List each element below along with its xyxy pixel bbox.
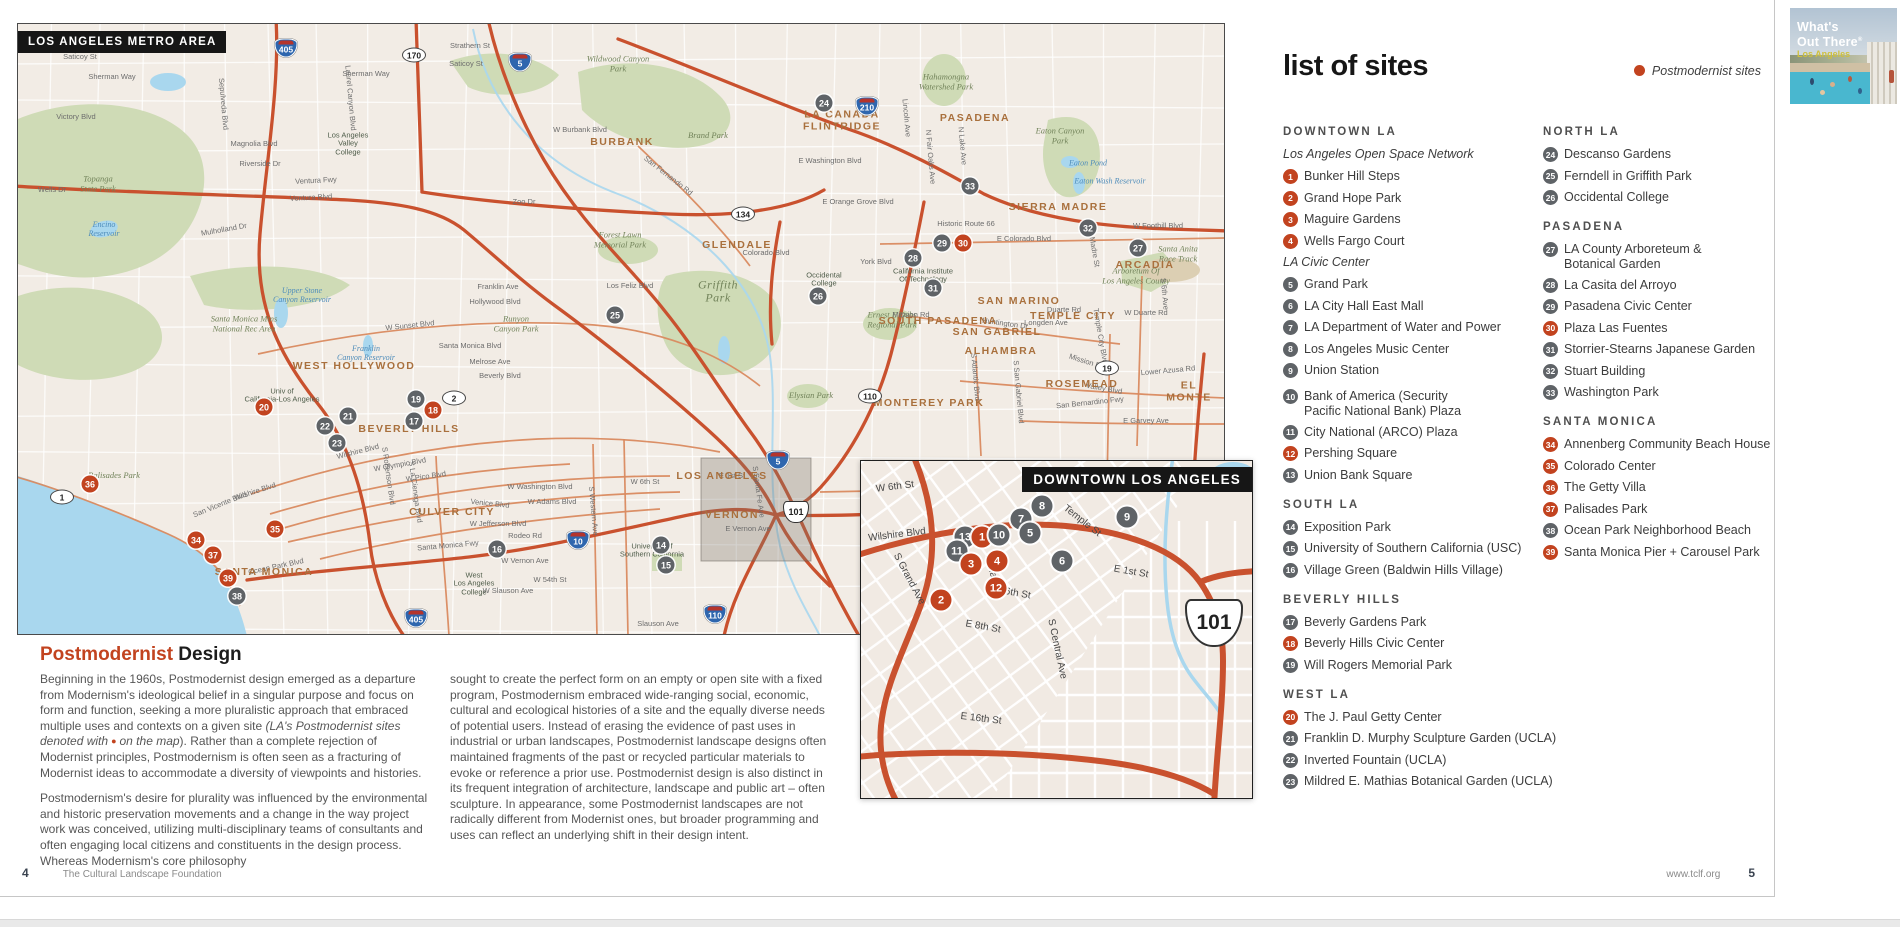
list-item-10: 10Bank of America (Security Pacific Nati… xyxy=(1283,389,1533,418)
article-paragraph-3: sought to create the perfect form on an … xyxy=(450,672,835,844)
site-name: Union Station xyxy=(1304,363,1379,378)
list-of-sites-panel: list of sites Postmodernist sites DOWNTO… xyxy=(1283,50,1761,83)
site-number-bullet: 31 xyxy=(1543,342,1558,357)
article-heading-rest: Design xyxy=(173,644,242,665)
list-item-39: 39Santa Monica Pier + Carousel Park xyxy=(1543,545,1761,560)
cover-figure xyxy=(1848,76,1852,82)
list-item-37: 37Palisades Park xyxy=(1543,502,1761,517)
article-column-1: Beginning in the 1960s, Postmodernist de… xyxy=(40,672,432,879)
downtown-extent-box xyxy=(701,458,811,561)
list-subheader: Los Angeles Open Space Network xyxy=(1283,147,1533,161)
site-name: Plaza Las Fuentes xyxy=(1564,321,1668,336)
site-name: Annenberg Community Beach House xyxy=(1564,437,1770,452)
list-item-34: 34Annenberg Community Beach House xyxy=(1543,437,1761,452)
list-item-9: 9Union Station xyxy=(1283,363,1533,378)
site-number-bullet: 21 xyxy=(1283,731,1298,746)
downtown-inset-map: W 6th StWilshire BlvdTemple StE 1st StS … xyxy=(860,460,1253,799)
list-item-12: 12Pershing Square xyxy=(1283,446,1533,461)
list-item-7: 7LA Department of Water and Power xyxy=(1283,320,1533,335)
site-number-bullet: 6 xyxy=(1283,299,1298,314)
list-item-14: 14Exposition Park xyxy=(1283,520,1533,535)
site-name: La Casita del Arroyo xyxy=(1564,278,1677,293)
list-item-15: 15University of Southern California (USC… xyxy=(1283,541,1533,556)
list-item-17: 17Beverly Gardens Park xyxy=(1283,615,1533,630)
cover-figure xyxy=(1889,70,1894,83)
list-item-25: 25Ferndell in Griffith Park xyxy=(1543,169,1761,184)
site-name: Bank of America (Security Pacific Nation… xyxy=(1304,389,1461,418)
list-item-32: 32Stuart Building xyxy=(1543,364,1761,379)
site-name: Santa Monica Pier + Carousel Park xyxy=(1564,545,1760,560)
list-item-31: 31Storrier-Stearns Japanese Garden xyxy=(1543,342,1761,357)
legend-label: Postmodernist sites xyxy=(1652,64,1761,78)
list-item-26: 26Occidental College xyxy=(1543,190,1761,205)
site-number-bullet: 39 xyxy=(1543,545,1558,560)
inset-map-graphic xyxy=(861,461,1253,799)
list-item-18: 18Beverly Hills Civic Center xyxy=(1283,636,1533,651)
cover-figure xyxy=(1810,78,1814,85)
red-dot-glyph: ● xyxy=(111,736,116,746)
site-name: Bunker Hill Steps xyxy=(1304,169,1400,184)
list-item-36: 36The Getty Villa xyxy=(1543,480,1761,495)
list-item-30: 30Plaza Las Fuentes xyxy=(1543,321,1761,336)
site-name: Ferndell in Griffith Park xyxy=(1564,169,1692,184)
site-name: Franklin D. Murphy Sculpture Garden (UCL… xyxy=(1304,731,1556,746)
cover-figure xyxy=(1858,88,1862,94)
list-item-27: 27LA County Arboreteum & Botanical Garde… xyxy=(1543,242,1761,271)
site-name: Inverted Fountain (UCLA) xyxy=(1304,753,1446,768)
list-item-8: 8Los Angeles Music Center xyxy=(1283,342,1533,357)
site-number-bullet: 38 xyxy=(1543,523,1558,538)
inset-title-badge: DOWNTOWN LOS ANGELES xyxy=(1022,467,1252,492)
site-number-bullet: 15 xyxy=(1283,541,1298,556)
site-number-bullet: 4 xyxy=(1283,234,1298,249)
site-number-bullet: 32 xyxy=(1543,364,1558,379)
site-name: Exposition Park xyxy=(1304,520,1391,535)
list-item-19: 19Will Rogers Memorial Park xyxy=(1283,658,1533,673)
site-number-bullet: 11 xyxy=(1283,425,1298,440)
site-name: Beverly Hills Civic Center xyxy=(1304,636,1444,651)
list-columns: DOWNTOWN LALos Angeles Open Space Networ… xyxy=(1283,126,1761,796)
site-name: LA County Arboreteum & Botanical Garden xyxy=(1564,242,1702,271)
site-name: The J. Paul Getty Center xyxy=(1304,710,1442,725)
site-name: Beverly Gardens Park xyxy=(1304,615,1426,630)
site-number-bullet: 37 xyxy=(1543,502,1558,517)
registered-mark: ® xyxy=(1858,37,1863,43)
site-name: Wells Fargo Court xyxy=(1304,234,1405,249)
site-number-bullet: 5 xyxy=(1283,277,1298,292)
site-name: Pershing Square xyxy=(1304,446,1397,461)
site-number-bullet: 27 xyxy=(1543,242,1558,257)
list-item-13: 13Union Bank Square xyxy=(1283,468,1533,483)
list-section-header: NORTH LA xyxy=(1543,126,1761,138)
cover-figure xyxy=(1820,90,1825,95)
site-number-bullet: 8 xyxy=(1283,342,1298,357)
site-number-bullet: 29 xyxy=(1543,299,1558,314)
site-number-bullet: 26 xyxy=(1543,190,1558,205)
list-item-16: 16Village Green (Baldwin Hills Village) xyxy=(1283,563,1533,578)
article-paragraph-2: Postmodernism's desire for plurality was… xyxy=(40,791,432,869)
list-item-4: 4Wells Fargo Court xyxy=(1283,234,1533,249)
site-number-bullet: 3 xyxy=(1283,212,1298,227)
booklet-cover-thumbnail: What'sOut There® Los Angeles xyxy=(1790,8,1897,104)
site-name: Grand Hope Park xyxy=(1304,191,1401,206)
page-number-left: 4 xyxy=(22,866,29,880)
legend-red-dot xyxy=(1634,65,1645,76)
site-name: Washington Park xyxy=(1564,385,1659,400)
site-number-bullet: 18 xyxy=(1283,636,1298,651)
list-item-29: 29Pasadena Civic Center xyxy=(1543,299,1761,314)
list-section-header: BEVERLY HILLS xyxy=(1283,594,1533,606)
footer-url: www.tclf.org xyxy=(1666,869,1720,880)
racetrack-area xyxy=(1140,258,1200,282)
page-canvas: Griffith ParkForest Lawn Memorial ParkEa… xyxy=(0,0,1900,927)
site-number-bullet: 7 xyxy=(1283,320,1298,335)
site-number-bullet: 17 xyxy=(1283,615,1298,630)
site-name: City National (ARCO) Plaza xyxy=(1304,425,1458,440)
page-bottom-edge xyxy=(0,919,1900,927)
site-number-bullet: 10 xyxy=(1283,389,1298,404)
site-name: Los Angeles Music Center xyxy=(1304,342,1449,357)
article-heading: Postmodernist Design xyxy=(40,644,242,666)
site-name: Grand Park xyxy=(1304,277,1368,292)
list-item-24: 24Descanso Gardens xyxy=(1543,147,1761,162)
site-number-bullet: 12 xyxy=(1283,446,1298,461)
site-number-bullet: 36 xyxy=(1543,480,1558,495)
list-item-22: 22Inverted Fountain (UCLA) xyxy=(1283,753,1533,768)
site-number-bullet: 22 xyxy=(1283,753,1298,768)
site-name: University of Southern California (USC) xyxy=(1304,541,1521,556)
site-number-bullet: 35 xyxy=(1543,459,1558,474)
site-name: Village Green (Baldwin Hills Village) xyxy=(1304,563,1503,578)
site-number-bullet: 30 xyxy=(1543,321,1558,336)
cover-subtitle: Los Angeles xyxy=(1797,49,1850,59)
site-name: LA City Hall East Mall xyxy=(1304,299,1423,314)
article-heading-accent: Postmodernist xyxy=(40,644,173,665)
list-item-5: 5Grand Park xyxy=(1283,277,1533,292)
list-section-header: SOUTH LA xyxy=(1283,499,1533,511)
site-number-bullet: 1 xyxy=(1283,169,1298,184)
site-name: Ocean Park Neighborhood Beach xyxy=(1564,523,1751,538)
list-section-header: DOWNTOWN LA xyxy=(1283,126,1533,138)
site-number-bullet: 24 xyxy=(1543,147,1558,162)
site-name: Pasadena Civic Center xyxy=(1564,299,1692,314)
list-item-1: 1Bunker Hill Steps xyxy=(1283,169,1533,184)
site-name: Maguire Gardens xyxy=(1304,212,1401,227)
list-section-header: PASADENA xyxy=(1543,221,1761,233)
site-number-bullet: 34 xyxy=(1543,437,1558,452)
list-section-header: SANTA MONICA xyxy=(1543,416,1761,428)
site-number-bullet: 25 xyxy=(1543,169,1558,184)
site-number-bullet: 28 xyxy=(1543,278,1558,293)
list-item-2: 2Grand Hope Park xyxy=(1283,191,1533,206)
footer-left: 4The Cultural Landscape Foundation xyxy=(22,866,222,880)
article-column-2: sought to create the perfect form on an … xyxy=(450,672,835,854)
list-item-11: 11City National (ARCO) Plaza xyxy=(1283,425,1533,440)
site-number-bullet: 16 xyxy=(1283,563,1298,578)
cover-title: What'sOut There® xyxy=(1797,21,1862,49)
list-subheader: LA Civic Center xyxy=(1283,255,1533,269)
site-name: Storrier-Stearns Japanese Garden xyxy=(1564,342,1755,357)
list-item-21: 21Franklin D. Murphy Sculpture Garden (U… xyxy=(1283,731,1533,746)
document-spread: Griffith ParkForest Lawn Memorial ParkEa… xyxy=(0,0,1775,897)
list-item-38: 38Ocean Park Neighborhood Beach xyxy=(1543,523,1761,538)
site-name: Colorado Center xyxy=(1564,459,1656,474)
site-number-bullet: 20 xyxy=(1283,710,1298,725)
list-item-23: 23Mildred E. Mathias Botanical Garden (U… xyxy=(1283,774,1533,789)
list-item-35: 35Colorado Center xyxy=(1543,459,1761,474)
list-title: list of sites xyxy=(1283,50,1428,83)
list-column-2: NORTH LA24Descanso Gardens25Ferndell in … xyxy=(1543,126,1761,796)
site-name: Mildred E. Mathias Botanical Garden (UCL… xyxy=(1304,774,1553,789)
list-item-6: 6LA City Hall East Mall xyxy=(1283,299,1533,314)
cover-figure xyxy=(1830,82,1835,87)
site-name: Union Bank Square xyxy=(1304,468,1412,483)
list-section-header: WEST LA xyxy=(1283,689,1533,701)
footer-org-name: The Cultural Landscape Foundation xyxy=(63,869,222,880)
site-number-bullet: 19 xyxy=(1283,658,1298,673)
site-number-bullet: 14 xyxy=(1283,520,1298,535)
postmodernist-legend: Postmodernist sites xyxy=(1634,64,1761,78)
list-panel-header: list of sites Postmodernist sites xyxy=(1283,50,1761,83)
site-name: Occidental College xyxy=(1564,190,1669,205)
list-item-28: 28La Casita del Arroyo xyxy=(1543,278,1761,293)
site-name: Palisades Park xyxy=(1564,502,1647,517)
site-name: LA Department of Water and Power xyxy=(1304,320,1501,335)
article-paragraph-1: Beginning in the 1960s, Postmodernist de… xyxy=(40,672,432,781)
site-name: Will Rogers Memorial Park xyxy=(1304,658,1452,673)
site-number-bullet: 2 xyxy=(1283,191,1298,206)
site-number-bullet: 9 xyxy=(1283,363,1298,378)
list-item-20: 20The J. Paul Getty Center xyxy=(1283,710,1533,725)
site-name: Stuart Building xyxy=(1564,364,1645,379)
list-column-1: DOWNTOWN LALos Angeles Open Space Networ… xyxy=(1283,126,1533,796)
map-title-badge: LOS ANGELES METRO AREA xyxy=(18,31,226,53)
footer-right: www.tclf.org5 xyxy=(1666,866,1755,880)
list-item-33: 33Washington Park xyxy=(1543,385,1761,400)
site-number-bullet: 33 xyxy=(1543,385,1558,400)
site-number-bullet: 13 xyxy=(1283,468,1298,483)
site-name: The Getty Villa xyxy=(1564,480,1646,495)
site-name: Descanso Gardens xyxy=(1564,147,1671,162)
page-number-right: 5 xyxy=(1748,866,1755,880)
list-item-3: 3Maguire Gardens xyxy=(1283,212,1533,227)
site-number-bullet: 23 xyxy=(1283,774,1298,789)
